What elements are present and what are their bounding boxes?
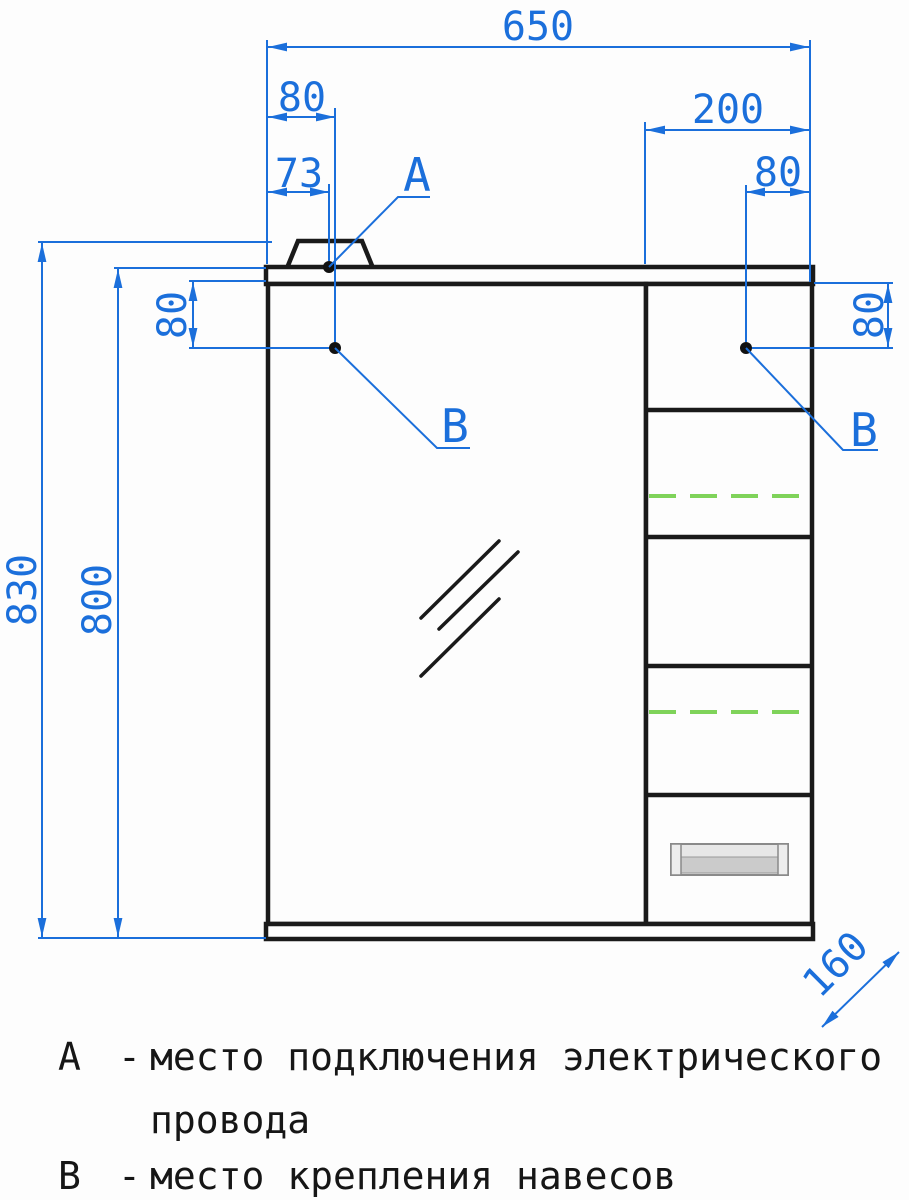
legend-a-letter: А	[58, 1038, 118, 1076]
dim-80-left-side-text: 80	[150, 291, 196, 339]
dim-80-top-right-text: 80	[754, 150, 802, 196]
legend-a-text: место подключения электрического	[150, 1038, 882, 1076]
top-panel	[266, 267, 813, 284]
dim-80-right-side-text: 80	[847, 291, 893, 339]
callout-b-right-letter: В	[850, 403, 878, 457]
legend-line-a: А - место подключения электрического	[58, 1038, 882, 1076]
legend-a-separator: -	[118, 1038, 150, 1076]
dim-800-text: 800	[75, 564, 121, 636]
mirror-door	[268, 284, 646, 924]
legend-b-separator: -	[118, 1157, 150, 1195]
cabinet-technical-drawing: 650 80 73 200 80 830 800 80 80 160 А В В	[0, 0, 909, 1200]
cabinet-body	[266, 241, 813, 939]
handle	[671, 844, 788, 875]
page: 650 80 73 200 80 830 800 80 80 160 А В В…	[0, 0, 909, 1200]
legend-b-letter: В	[58, 1157, 118, 1195]
legend-line-b: В - место крепления навесов	[58, 1157, 676, 1195]
legend-line-a-continued: провода	[150, 1101, 310, 1139]
legend-b-text: место крепления навесов	[150, 1157, 676, 1195]
legend-a-text-continued: провода	[150, 1101, 310, 1139]
dim-200-text: 200	[692, 87, 764, 133]
dim-650-text: 650	[502, 4, 574, 50]
bottom-panel	[266, 924, 813, 939]
dim-830-text: 830	[0, 554, 46, 626]
callout-a-letter: А	[403, 148, 431, 202]
dim-80-top-left-text: 80	[278, 75, 326, 121]
dim-73-text: 73	[275, 151, 323, 197]
callout-b-left-letter: В	[441, 399, 469, 453]
side-shelf-column	[646, 284, 812, 924]
